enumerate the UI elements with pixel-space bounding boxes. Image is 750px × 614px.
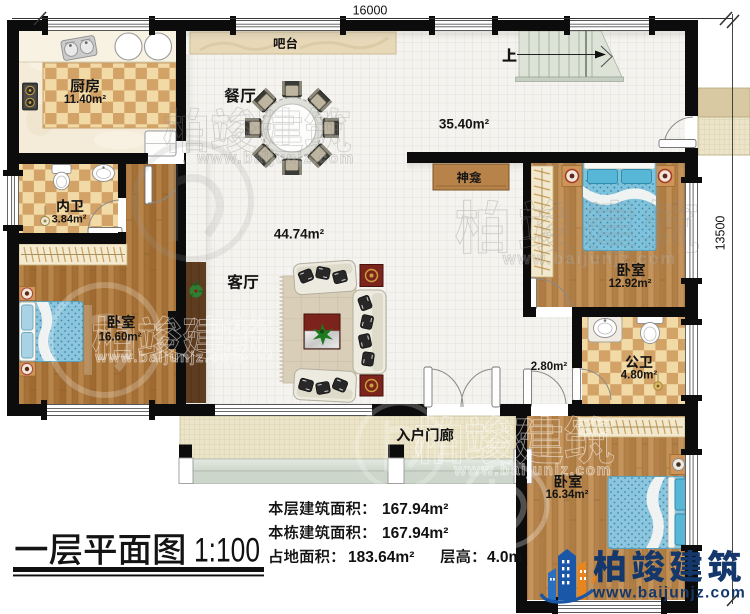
- svg-text:13500: 13500: [714, 216, 728, 251]
- svg-text:www.baijunjz.com: www.baijunjz.com: [196, 150, 355, 167]
- svg-text:183.64m²: 183.64m²: [348, 549, 414, 566]
- svg-text:1:100: 1:100: [194, 532, 260, 570]
- svg-text:www.baijunjz.com: www.baijunjz.com: [94, 350, 244, 366]
- svg-text:167.94m²: 167.94m²: [382, 501, 448, 518]
- svg-text:16.60m²: 16.60m²: [99, 332, 142, 344]
- svg-text:35.40m²: 35.40m²: [439, 117, 490, 132]
- svg-text:4.0m: 4.0m: [487, 549, 522, 566]
- svg-text:www.baijunjz.com: www.baijunjz.com: [453, 462, 612, 479]
- svg-text:44.74m²: 44.74m²: [274, 227, 325, 242]
- svg-text:11.40m²: 11.40m²: [64, 94, 106, 106]
- svg-text:16.34m²: 16.34m²: [546, 489, 589, 501]
- svg-text:12.92m²: 12.92m²: [609, 278, 652, 290]
- svg-text:www.baijunjz.com: www.baijunjz.com: [592, 585, 746, 602]
- svg-text:3.84m²: 3.84m²: [52, 213, 87, 225]
- svg-text:4.80m²: 4.80m²: [621, 370, 658, 382]
- svg-text:www.baijunjz.com: www.baijunjz.com: [502, 250, 677, 268]
- svg-text:2.80m²: 2.80m²: [531, 361, 568, 373]
- svg-text:167.94m²: 167.94m²: [382, 525, 448, 542]
- svg-text:16000: 16000: [353, 4, 388, 18]
